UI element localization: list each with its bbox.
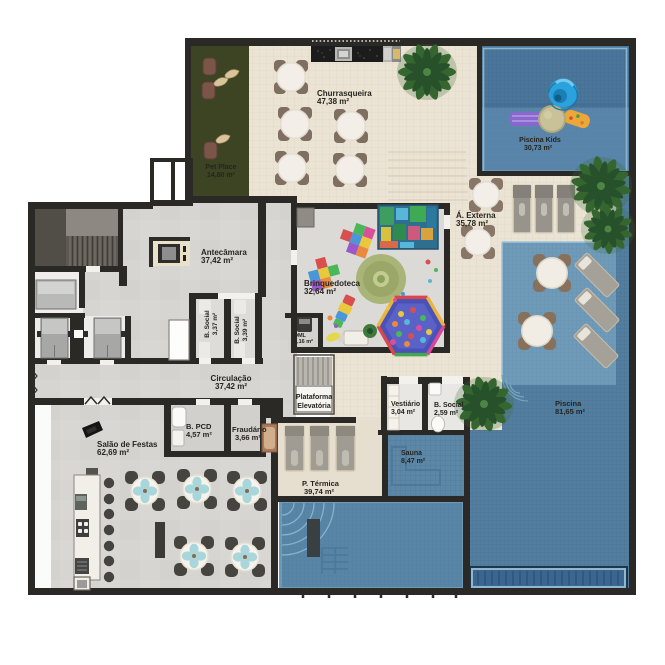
svg-text:3,66 m²: 3,66 m² [235,433,261,442]
svg-text:81,65 m²: 81,65 m² [555,407,586,416]
svg-text:47,38 m²: 47,38 m² [317,97,349,106]
svg-text:37,42 m²: 37,42 m² [201,256,233,265]
svg-text:B. Social: B. Social [204,310,211,338]
svg-text:3,37 m²: 3,37 m² [212,312,219,335]
svg-text:Plataforma: Plataforma [296,394,332,401]
svg-text:14,80 m²: 14,80 m² [207,172,236,179]
svg-text:35,78 m²: 35,78 m² [456,219,488,228]
svg-text:B. Social: B. Social [434,402,464,409]
svg-text:62,69 m²: 62,69 m² [97,448,129,457]
svg-text:Vestiário: Vestiário [391,401,420,408]
svg-text:30,73 m²: 30,73 m² [524,145,553,152]
svg-text:8,47 m²: 8,47 m² [401,458,426,465]
svg-text:1,16 m²: 1,16 m² [294,338,313,345]
svg-text:2,59 m²: 2,59 m² [434,410,459,417]
svg-text:Elevatória: Elevatória [297,403,331,410]
svg-text:39,74 m²: 39,74 m² [304,487,335,496]
svg-text:32,64 m²: 32,64 m² [304,287,336,296]
svg-text:B. Social: B. Social [234,316,241,344]
svg-text:4,57 m²: 4,57 m² [186,430,212,439]
svg-text:3,39 m²: 3,39 m² [242,318,249,341]
svg-text:Piscina Kids: Piscina Kids [519,137,561,144]
svg-text:37,42 m²: 37,42 m² [215,382,247,391]
svg-text:Pet Place: Pet Place [205,164,236,171]
svg-text:3,04 m²: 3,04 m² [391,409,416,416]
svg-text:Sauna: Sauna [401,450,422,457]
